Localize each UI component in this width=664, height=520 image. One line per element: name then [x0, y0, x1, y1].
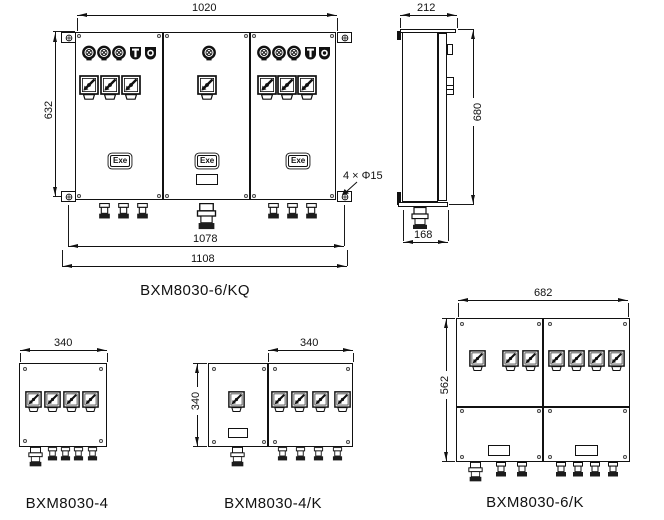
cable-gland-icon — [136, 203, 149, 219]
panel-divider — [267, 364, 269, 446]
door-latch — [447, 44, 453, 55]
corner-screw — [346, 440, 350, 444]
indicator-lamp-icon — [257, 45, 271, 61]
corner-screw — [165, 34, 169, 38]
rotary-switch-icon — [291, 391, 308, 413]
rotary-switch-icon — [82, 391, 99, 413]
cable-gland-icon — [295, 447, 306, 461]
cable-gland-icon — [60, 447, 71, 461]
rotary-switch-icon — [588, 350, 605, 372]
rotary-switch-icon — [44, 391, 61, 413]
hinge-line — [446, 85, 454, 86]
dimension-value: 340 — [299, 337, 319, 349]
corner-screw — [460, 455, 464, 459]
dimension-value: 1078 — [192, 233, 218, 245]
dimension-line-bottom-inner — [68, 246, 344, 247]
nameplate — [196, 174, 218, 185]
corner-screw — [537, 455, 541, 459]
exe-marking: Exe — [288, 155, 308, 167]
extension-line — [448, 210, 449, 241]
dimension-value: 168 — [413, 229, 433, 241]
dimension-value: 212 — [416, 2, 436, 14]
hinge-line — [446, 89, 454, 90]
dimension-value: 1108 — [190, 253, 216, 265]
corner-screw — [212, 367, 216, 371]
corner-screw — [244, 194, 248, 198]
cable-gland-large-icon — [196, 203, 217, 230]
corner-screw — [330, 34, 334, 38]
dimension-line-top — [20, 350, 107, 351]
extension-line — [337, 18, 338, 31]
corner-screw — [244, 34, 248, 38]
model-label: BXM8030-4/K — [213, 495, 333, 512]
extension-line — [353, 353, 354, 362]
corner-screw — [548, 322, 552, 326]
leader-line — [338, 181, 360, 197]
panel-divider-horizontal — [457, 406, 629, 408]
cable-gland-icon — [117, 203, 130, 219]
mounting-lug — [337, 32, 352, 43]
corner-screw — [273, 367, 277, 371]
rotary-switch-icon — [277, 75, 297, 101]
pushbutton-icon — [129, 46, 142, 61]
cable-gland-icon — [98, 203, 111, 219]
cable-gland-icon — [555, 462, 567, 477]
dimension-line-bottom — [403, 242, 448, 243]
model-label: BXM8030-6/K — [475, 494, 595, 511]
rotary-switch-icon — [271, 391, 288, 413]
view-front-4k: 340 340 BXM8030-4/K — [180, 330, 365, 520]
indicator-lamp-icon — [82, 45, 96, 61]
dimension-line-left — [55, 32, 56, 197]
corner-screw — [330, 194, 334, 198]
extension-line — [457, 18, 458, 28]
mounting-screw-icon — [65, 193, 73, 201]
corner-screw — [77, 194, 81, 198]
corner-screw — [165, 194, 169, 198]
corner-screw — [23, 439, 27, 443]
dimension-value: 1020 — [191, 2, 217, 14]
extension-line — [403, 210, 404, 241]
cable-gland-icon — [313, 447, 324, 461]
panel-divider — [249, 33, 251, 199]
indicator-lamp-icon — [97, 45, 111, 61]
view-front-6kq: 1020 632 — [40, 0, 370, 310]
rotary-switch-icon — [257, 75, 277, 101]
cable-gland-icon — [87, 447, 98, 461]
corner-screw — [77, 34, 81, 38]
rotary-switch-icon — [121, 75, 141, 101]
cable-gland-large-icon — [468, 462, 483, 482]
mounting-lug — [397, 31, 401, 40]
indicator-lamp-icon — [202, 45, 216, 61]
indicator-lamp-icon — [112, 45, 126, 61]
dimension-line-bottom-outer — [62, 266, 347, 267]
cable-gland-icon — [589, 462, 601, 477]
pushbutton-icon — [318, 46, 331, 61]
corner-screw — [273, 440, 277, 444]
extension-line — [628, 303, 629, 317]
corner-screw — [99, 439, 103, 443]
dimension-line-top — [268, 350, 353, 351]
extension-line — [107, 353, 108, 362]
panel-divider — [162, 33, 164, 199]
mounting-screw-icon — [65, 34, 73, 42]
corner-screw — [262, 367, 266, 371]
cable-gland-icon — [607, 462, 619, 477]
corner-screw — [23, 367, 27, 371]
view-front-4: 340 BXM8030-4 — [10, 330, 150, 520]
corner-screw — [262, 440, 266, 444]
extension-line — [68, 205, 69, 246]
corner-screw — [99, 367, 103, 371]
exe-marking: Exe — [197, 155, 217, 167]
rotary-switch-icon — [63, 391, 80, 413]
nameplate — [488, 445, 510, 456]
rotary-switch-icon — [608, 350, 625, 372]
cable-gland-icon — [267, 203, 280, 219]
side-door — [438, 33, 447, 201]
rotary-switch-icon — [197, 75, 217, 101]
cable-gland-icon — [47, 447, 58, 461]
cable-gland-icon — [572, 462, 584, 477]
rotary-switch-icon — [502, 350, 519, 372]
extension-line — [268, 353, 269, 362]
rotary-switch-icon — [548, 350, 565, 372]
view-side: 212 680 168 — [380, 0, 495, 262]
cable-gland-icon — [286, 203, 299, 219]
dimension-value: 562 — [439, 371, 451, 399]
extension-line — [458, 303, 459, 317]
corner-screw — [623, 455, 627, 459]
extension-line — [347, 250, 348, 266]
corner-screw — [212, 440, 216, 444]
dimension-value: 340 — [53, 337, 73, 349]
dimension-value: 632 — [43, 95, 55, 125]
model-label: BXM8030-6/KQ — [95, 282, 295, 299]
corner-screw — [623, 322, 627, 326]
dimension-line-top — [400, 15, 457, 16]
corner-screw — [252, 34, 256, 38]
pushbutton-icon — [144, 46, 157, 61]
dimension-line-top — [77, 15, 337, 16]
rotary-switch-icon — [228, 391, 245, 413]
cable-gland-icon — [73, 447, 84, 461]
rotary-switch-icon — [297, 75, 317, 101]
dimension-value: 682 — [533, 287, 553, 299]
dimension-line-top — [458, 300, 628, 301]
cable-gland-icon — [277, 447, 288, 461]
extension-line — [77, 18, 78, 31]
rotary-switch-icon — [100, 75, 120, 101]
cable-gland-icon — [516, 462, 528, 477]
cable-gland-icon — [332, 447, 343, 461]
cable-gland-large-icon — [28, 447, 43, 467]
rotary-switch-icon — [334, 391, 351, 413]
corner-screw — [548, 455, 552, 459]
pushbutton-icon — [304, 46, 317, 61]
nameplate — [575, 445, 598, 456]
indicator-lamp-icon — [287, 45, 301, 61]
model-label: BXM8030-4 — [12, 495, 122, 512]
cable-gland-large-icon — [410, 207, 430, 231]
extension-line — [20, 353, 21, 362]
side-body — [402, 32, 438, 202]
mounting-screw-icon — [341, 34, 349, 42]
corner-screw — [346, 367, 350, 371]
corner-screw — [157, 34, 161, 38]
corner-screw — [157, 194, 161, 198]
rotary-switch-icon — [568, 350, 585, 372]
technical-drawing: 1020 632 — [0, 0, 664, 520]
corner-screw — [623, 409, 627, 413]
door-hinge — [446, 77, 454, 95]
mounting-lug — [61, 32, 76, 43]
rotary-switch-icon — [522, 350, 539, 372]
dimension-value: 680 — [472, 98, 484, 126]
rotary-switch-icon — [79, 75, 99, 101]
rotary-switch-icon — [469, 350, 486, 372]
indicator-lamp-icon — [272, 45, 286, 61]
corner-screw — [548, 409, 552, 413]
corner-screw — [537, 409, 541, 413]
cable-gland-large-icon — [230, 447, 245, 467]
cable-gland-icon — [305, 203, 318, 219]
panel-divider — [542, 319, 544, 461]
rotary-switch-icon — [312, 391, 329, 413]
corner-screw — [460, 409, 464, 413]
view-front-6k: 682 562 BXM8030-6/K — [430, 280, 664, 520]
corner-screw — [537, 322, 541, 326]
exe-marking: Exe — [110, 155, 130, 167]
dimension-value: 340 — [190, 387, 202, 415]
cable-gland-icon — [495, 462, 507, 477]
nameplate — [228, 428, 248, 438]
corner-screw — [252, 194, 256, 198]
extension-line — [400, 18, 401, 28]
rotary-switch-icon — [25, 391, 42, 413]
mounting-lug — [61, 191, 76, 202]
corner-screw — [460, 322, 464, 326]
extension-line — [344, 205, 345, 246]
